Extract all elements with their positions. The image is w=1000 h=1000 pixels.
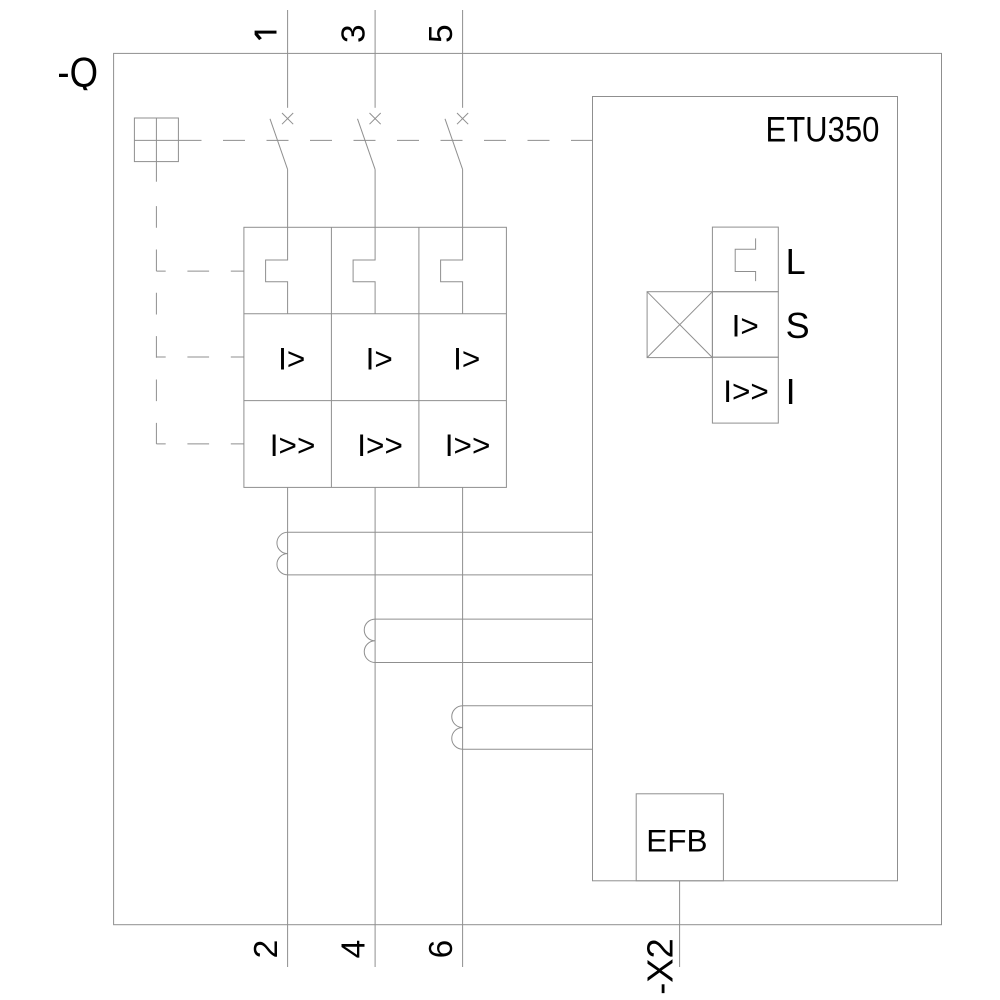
svg-text:2: 2 [248, 940, 285, 959]
svg-text:-X2: -X2 [640, 938, 681, 994]
svg-text:I>>: I>> [445, 427, 491, 463]
svg-text:6: 6 [423, 940, 460, 959]
svg-text:3: 3 [336, 24, 373, 43]
svg-text:I>>: I>> [723, 373, 769, 409]
svg-text:I>>: I>> [357, 427, 403, 463]
svg-text:L: L [786, 241, 806, 282]
svg-text:I>: I> [366, 340, 393, 376]
svg-text:I>: I> [278, 340, 305, 376]
svg-text:EFB: EFB [646, 822, 707, 858]
svg-text:4: 4 [336, 940, 373, 959]
svg-text:I>>: I>> [270, 427, 316, 463]
svg-text:ETU350: ETU350 [765, 111, 879, 150]
svg-text:S: S [786, 305, 810, 346]
svg-text:-Q: -Q [57, 49, 98, 96]
svg-text:I>: I> [732, 307, 759, 343]
svg-text:I>: I> [453, 340, 480, 376]
svg-text:5: 5 [423, 24, 460, 43]
svg-text:I: I [786, 371, 796, 412]
